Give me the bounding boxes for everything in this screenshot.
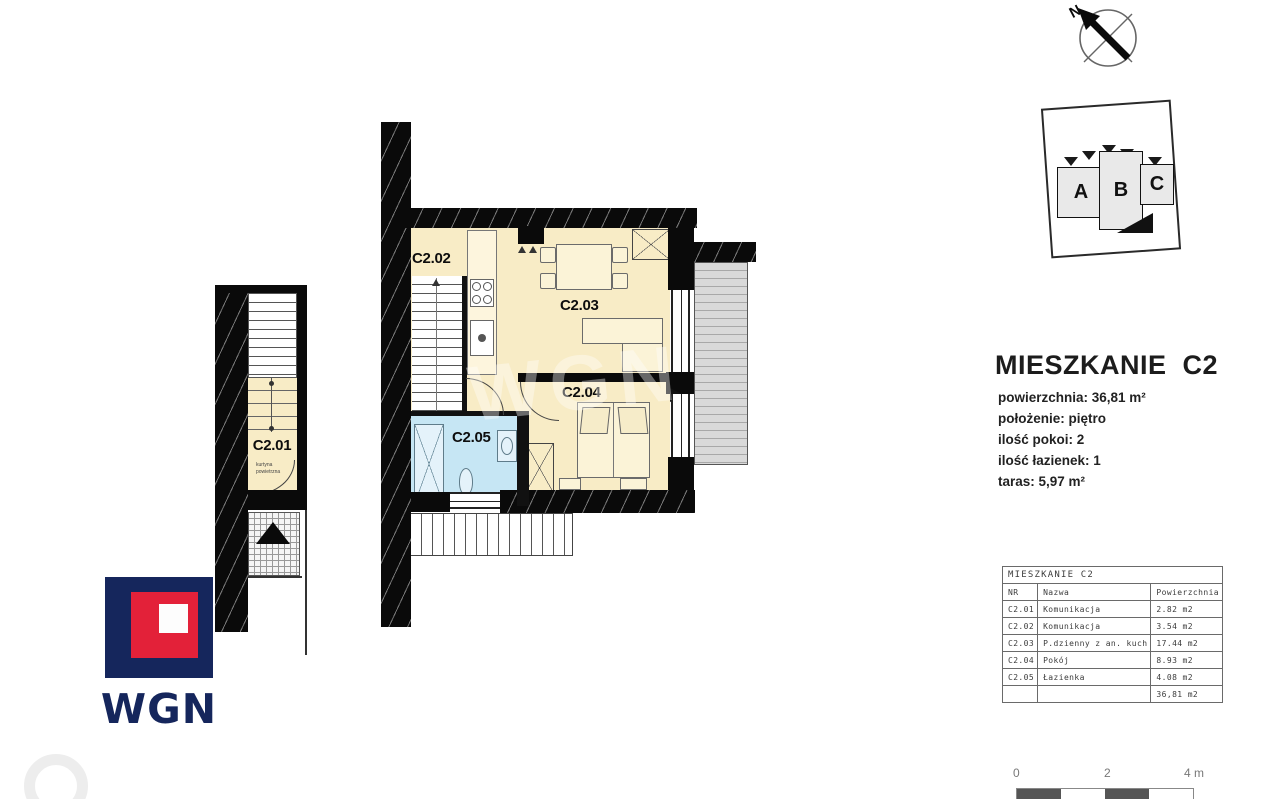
cell-name: Komunikacja [1038,618,1151,635]
table-row: C2.05 Łazienka 4.08 m2 [1003,669,1223,686]
cell-nr: C2.01 [1003,601,1038,618]
cell-name: P.dzienny z an. kuch [1038,635,1151,652]
north-arrow: N [1066,0,1144,72]
scale-segment-light [1149,789,1193,799]
scale-segment-dark [1105,789,1149,799]
scale-tick-0: 0 [1013,766,1020,780]
table-row: C2.03 P.dzienny z an. kuch 17.44 m2 [1003,635,1223,652]
bedroom-wardrobe-xbox [525,443,554,493]
stair-node-dot [269,426,274,431]
left-plan-right-wall [297,288,307,510]
scale-tick-2: 2 [1104,766,1111,780]
building-block-b: B [1099,151,1143,230]
room-label-c205: C2.05 [452,429,491,446]
col-header-nr: NR [1003,584,1038,601]
entrance-arrow-triangle [256,522,290,544]
washbasin [497,430,517,462]
wgn-logo-text: WGN [97,685,221,733]
vent-arrow-icon [518,246,526,253]
building-key: A B C [1040,95,1190,265]
stairs-c201-lower [248,378,297,432]
window-terrace-2 [671,394,690,457]
chair [612,273,628,289]
block-b-label: B [1114,179,1128,202]
table-title-row: MIESZKANIE C2 [1003,567,1223,584]
c201-lower-wall [248,490,298,510]
cell-area: 3.54 m2 [1151,618,1223,635]
table-row: C2.02 Komunikacja 3.54 m2 [1003,618,1223,635]
spec-floor: położenie: piętro [998,411,1228,426]
cell-nr: C2.03 [1003,635,1038,652]
vent-arrow-icon [529,246,537,253]
stairs-c202 [412,276,462,416]
porch-bottom-line [248,576,302,578]
wardrobe-xbox [632,229,670,260]
col-header-area: Powierzchnia [1151,584,1223,601]
block-a-label: A [1074,181,1088,204]
nightstand [620,478,647,490]
stairs-c202-centerline [436,278,437,414]
terrace-beam [686,242,756,262]
entrance-note-line2: powietrzna [256,469,280,475]
wall-top [405,208,697,228]
building-block-a: A [1057,167,1105,218]
room-table: MIESZKANIE C2 NR Nazwa Powierzchnia C2.0… [1002,566,1223,703]
cell-name: Komunikacja [1038,601,1151,618]
cell-name: Łazienka [1038,669,1151,686]
building-block-c: C [1140,164,1174,205]
scale-segment-dark [1017,789,1061,799]
burner-icon [483,282,492,291]
cell-empty [1003,686,1038,703]
pillow [580,407,611,434]
block-c-label: C [1150,173,1164,196]
table-row: C2.01 Komunikacja 2.82 m2 [1003,601,1223,618]
entrance-note-line1: kurtyna [256,462,272,468]
watermark-ring [24,754,88,799]
cell-area: 8.93 m2 [1151,652,1223,669]
floorplan-canvas: C2.02 C2.03 C2.04 C2.05 C2.01 kurtyna po… [0,0,1280,799]
stairs-direction-arrow [432,279,440,286]
roof-mark-icon [1064,157,1078,166]
sofa-seat [582,318,663,344]
room-label-c201: C2.01 [247,437,297,454]
room-label-c204: C2.04 [562,384,601,401]
cell-area: 4.08 m2 [1151,669,1223,686]
chimney-duct [518,226,544,244]
burner-icon [483,295,492,304]
table-header-row: NR Nazwa Powierzchnia [1003,584,1223,601]
bedroom-wall [518,373,670,382]
scale-tick-4m: 4 m [1184,766,1204,780]
dining-table [556,244,612,290]
table-title: MIESZKANIE C2 [1003,567,1223,584]
bed-divider-line [613,403,614,477]
table-row: C2.04 Pokój 8.93 m2 [1003,652,1223,669]
window-terrace-1 [671,290,690,372]
toilet-bowl [459,468,473,495]
spec-rooms: ilość pokoi: 2 [998,432,1228,447]
left-plan-top-wall [215,285,307,293]
cell-area: 17.44 m2 [1151,635,1223,652]
stove [470,279,494,307]
cell-area: 2.82 m2 [1151,601,1223,618]
table-total-row: 36,81 m2 [1003,686,1223,703]
nightstand [559,478,581,490]
pillow [618,407,649,434]
chair [612,247,628,263]
chair [540,247,556,263]
sofa-chaise [622,343,663,372]
spec-terrace: taras: 5,97 m² [998,474,1228,489]
spec-area: powierzchnia: 36,81 m² [998,390,1228,405]
chair [540,273,556,289]
cell-nr: C2.05 [1003,669,1038,686]
burner-icon [472,295,481,304]
bathroom-wall-right [517,411,529,506]
scale-bar [1016,788,1194,799]
wall-bottom-left [411,492,450,512]
wall-bottom [500,490,695,513]
cell-nr: C2.04 [1003,652,1038,669]
party-wall-left [381,122,411,627]
room-label-c203: C2.03 [560,297,599,314]
cell-nr: C2.02 [1003,618,1038,635]
stairs-c201-upper [248,293,297,378]
burner-icon [472,282,481,291]
col-header-name: Nazwa [1038,584,1151,601]
roof-mark-icon [1082,151,1096,160]
kitchen-sink [470,320,494,356]
terrace-deck [694,262,748,465]
scale-segment-light [1061,789,1105,799]
wgn-logo-white-square [159,604,188,633]
apartment-title: MIESZKANIE C2 [995,350,1218,381]
party-wall-left-plan [215,285,248,632]
cell-name: Pokój [1038,652,1151,669]
stair-node-dot [269,381,274,386]
spec-baths: ilość łazienek: 1 [998,453,1228,468]
bathroom-window [450,492,500,509]
left-plan-right-line [305,510,307,655]
sink-drain-icon [478,334,486,342]
washbasin-bowl-icon [501,437,513,455]
lower-terrace [410,513,573,556]
cell-total-area: 36,81 m2 [1151,686,1223,703]
stairs-c201-centerline [271,378,272,432]
room-label-c202: C2.02 [412,250,451,267]
cell-empty [1038,686,1151,703]
